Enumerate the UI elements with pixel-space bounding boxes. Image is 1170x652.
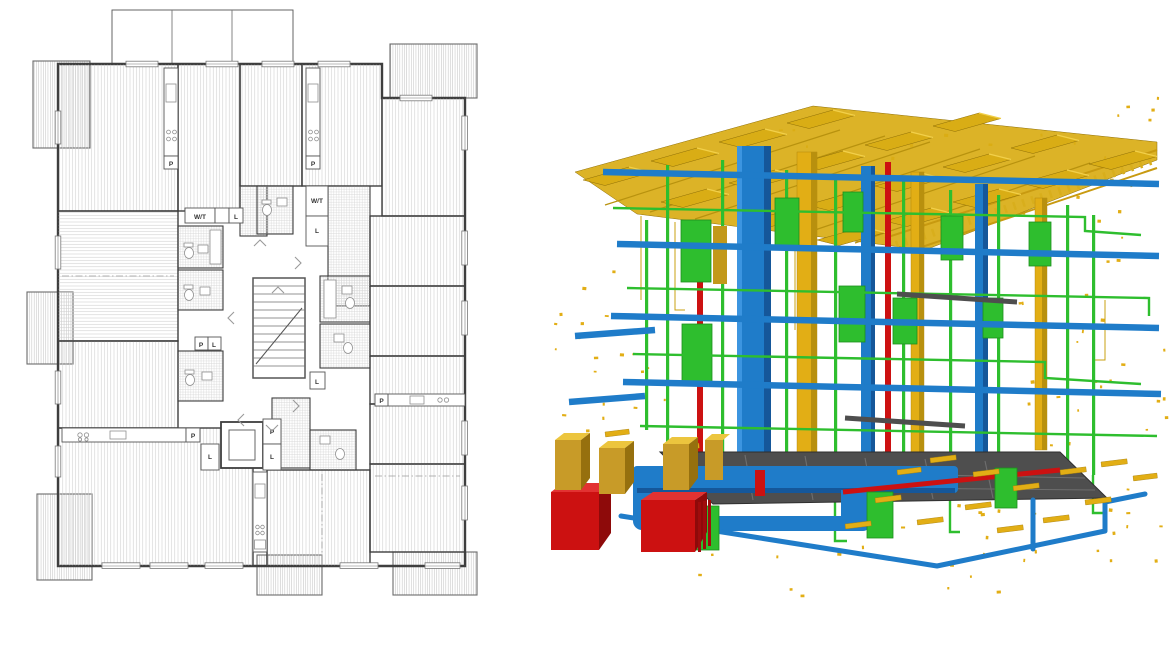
- bathroom: [178, 270, 223, 310]
- kitchen-counter: P: [62, 428, 200, 442]
- room-label-wt: W/T: [311, 198, 323, 205]
- floor-plan-panel: W/T L W/T L P L L P: [10, 6, 490, 651]
- bathroom: [178, 226, 223, 268]
- stairs: [253, 278, 305, 378]
- room-label-l: L: [208, 454, 212, 461]
- room-label-p: P: [191, 433, 196, 440]
- kitchen-counter: P: [164, 68, 178, 169]
- bathroom: [320, 324, 370, 368]
- room-label-p: P: [379, 398, 384, 405]
- room-label-l: L: [315, 228, 319, 235]
- figure-canvas: W/T L W/T L P L L P: [0, 0, 1170, 652]
- gold-cabinet: [713, 226, 727, 284]
- room-label-l: L: [315, 379, 319, 386]
- room-label-wt: W/T: [194, 214, 206, 221]
- bathroom: [320, 276, 370, 322]
- elevator: P L L: [201, 419, 281, 470]
- roof-terrace-strip: [112, 10, 293, 64]
- room-label-p: P: [199, 342, 204, 349]
- kitchen-counter: P: [375, 394, 465, 406]
- room-label-p: P: [311, 161, 316, 168]
- room-label-l: L: [234, 214, 238, 221]
- bathroom: [310, 430, 356, 470]
- bim-model-panel: [545, 0, 1170, 652]
- kitchen-counter: P: [306, 68, 320, 169]
- bathroom: [257, 186, 293, 234]
- room-label-l: L: [212, 342, 216, 349]
- room-label-l: L: [270, 454, 274, 461]
- room-label-p: P: [169, 161, 174, 168]
- bathroom: [178, 351, 223, 401]
- kitchen-counter: [253, 472, 267, 552]
